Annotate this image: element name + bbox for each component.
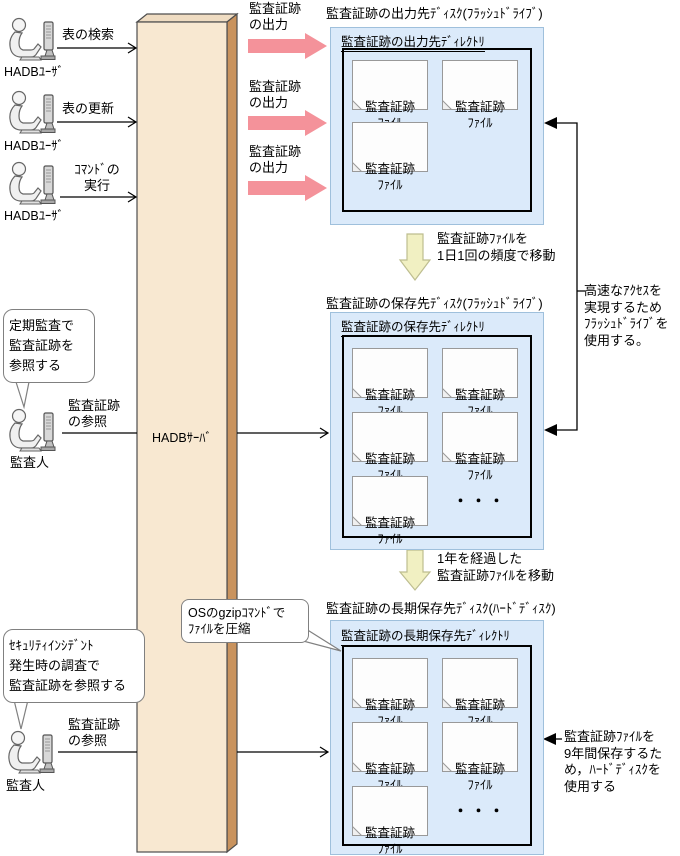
hard-disk-note: 監査証跡ﾌｧｲﾙを 9年間保存するた め，ﾊｰﾄﾞﾃﾞｨｽｸを 使用する bbox=[564, 729, 680, 795]
more-files-ellipsis: ・・・ bbox=[442, 490, 518, 511]
auditor-label: 監査人 bbox=[6, 778, 45, 794]
disk1-directory-label: 監査証跡の出力先ﾃﾞｨﾚｸﾄﾘ bbox=[341, 31, 485, 52]
user-label: HADBﾕｰｻﾞ bbox=[4, 205, 64, 224]
regular-audit-bubble: 定期監査で 監査証跡を 参照する bbox=[3, 309, 95, 383]
flash-note-connector bbox=[544, 117, 585, 436]
audit-output-label: 監査証跡 の出力 bbox=[249, 1, 301, 32]
folded-corner-icon bbox=[352, 388, 362, 398]
bubble-tail bbox=[14, 700, 28, 729]
audit-trail-file: 監査証跡 ﾌｧｲﾙ bbox=[352, 348, 428, 398]
user-action-label: 表の検索 bbox=[62, 27, 114, 43]
disk2-title: 監査証跡の保存先ﾃﾞｨｽｸ(ﾌﾗｯｼｭﾄﾞﾗｲﾌﾞ) bbox=[326, 293, 543, 312]
audit-trail-file: 監査証跡 ﾌｧｲﾙ bbox=[352, 412, 428, 462]
auditor-at-computer-icon bbox=[10, 410, 55, 452]
folded-corner-icon bbox=[352, 698, 362, 708]
folded-corner-icon bbox=[352, 452, 362, 462]
user-label: HADBﾕｰｻﾞ bbox=[4, 135, 64, 154]
audit-trail-file: 監査証跡 ﾌｧｲﾙ bbox=[352, 786, 428, 836]
folded-corner-icon bbox=[352, 516, 362, 526]
disk2-directory-label: 監査証跡の保存先ﾃﾞｨﾚｸﾄﾘ bbox=[341, 316, 485, 337]
audit-trail-file: 監査証跡 ﾌｧｲﾙ bbox=[352, 60, 428, 110]
user-at-computer-icon bbox=[10, 92, 55, 134]
more-files-ellipsis: ・・・ bbox=[442, 800, 518, 821]
audit-trail-file: 監査証跡 ﾌｧｲﾙ bbox=[442, 412, 518, 462]
folded-corner-icon bbox=[442, 452, 452, 462]
auditor-action-label: 監査証跡 の参照 bbox=[68, 398, 120, 429]
auditor-action-label: 監査証跡 の参照 bbox=[68, 717, 120, 748]
hard-disk-note-arrow bbox=[543, 733, 562, 745]
user-action-label: 表の更新 bbox=[62, 101, 114, 117]
user-at-computer-icon bbox=[10, 19, 55, 61]
audit-trail-file: 監査証跡 ﾌｧｲﾙ bbox=[442, 658, 518, 708]
folded-corner-icon bbox=[352, 826, 362, 836]
incident-audit-bubble: ｾｷｭﾘﾃｨｲﾝｼﾃﾞﾝﾄ 発生時の調査で 監査証跡を参照する bbox=[3, 629, 145, 703]
audit-trail-file: 監査証跡 ﾌｧｲﾙ bbox=[442, 722, 518, 772]
audit-trail-file: 監査証跡 ﾌｧｲﾙ bbox=[352, 122, 428, 172]
flash-drive-note: 高速なｱｸｾｽを 実現するため ﾌﾗｯｼｭﾄﾞﾗｲﾌﾞを 使用する。 bbox=[584, 283, 669, 349]
move-daily-label: 監査証跡ﾌｧｲﾙを 1日1回の頻度で移動 bbox=[437, 231, 555, 264]
folded-corner-icon bbox=[352, 762, 362, 772]
hadb-audit-trail-diagram: HADBﾕｰｻﾞ HADBﾕｰｻﾞ HADBﾕｰｻﾞ 表の検索 表の更新 ｺﾏﾝ… bbox=[0, 0, 680, 856]
disk3-title: 監査証跡の長期保存先ﾃﾞｨｽｸ(ﾊｰﾄﾞﾃﾞｨｽｸ) bbox=[326, 598, 556, 617]
bubble-tail bbox=[16, 382, 29, 407]
folded-corner-icon bbox=[442, 762, 452, 772]
folded-corner-icon bbox=[442, 100, 452, 110]
audit-trail-file: 監査証跡 ﾌｧｲﾙ bbox=[352, 658, 428, 708]
auditor-label: 監査人 bbox=[10, 455, 49, 471]
disk3-directory-label: 監査証跡の長期保存先ﾃﾞｨﾚｸﾄﾘ bbox=[341, 625, 510, 646]
folded-corner-icon bbox=[352, 100, 362, 110]
audit-output-block-arrows bbox=[248, 33, 327, 201]
audit-trail-file: 監査証跡 ﾌｧｲﾙ bbox=[442, 348, 518, 398]
audit-output-label: 監査証跡 の出力 bbox=[249, 144, 301, 175]
audit-trail-file: 監査証跡 ﾌｧｲﾙ bbox=[352, 476, 428, 526]
audit-output-label: 監査証跡 の出力 bbox=[249, 79, 301, 110]
gzip-note-bubble: OSのgzipｺﾏﾝﾄﾞで ﾌｧｲﾙを圧縮 bbox=[181, 599, 309, 643]
move-yearly-label: 1年を経過した 監査証跡ﾌｧｲﾙを移動 bbox=[437, 551, 554, 584]
user-action-label: ｺﾏﾝﾄﾞの 実行 bbox=[68, 162, 126, 193]
audit-trail-file: 監査証跡 ﾌｧｲﾙ bbox=[352, 722, 428, 772]
folded-corner-icon bbox=[442, 698, 452, 708]
folded-corner-icon bbox=[442, 388, 452, 398]
user-at-computer-icon bbox=[10, 163, 55, 205]
server-label: HADBｻｰﾊﾞ bbox=[152, 427, 212, 446]
folded-corner-icon bbox=[352, 162, 362, 172]
user-label: HADBﾕｰｻﾞ bbox=[4, 61, 64, 80]
auditor-at-computer-icon bbox=[9, 732, 54, 774]
audit-trail-file: 監査証跡 ﾌｧｲﾙ bbox=[442, 60, 518, 110]
disk1-title: 監査証跡の出力先ﾃﾞｨｽｸ(ﾌﾗｯｼｭﾄﾞﾗｲﾌﾞ) bbox=[326, 3, 543, 22]
